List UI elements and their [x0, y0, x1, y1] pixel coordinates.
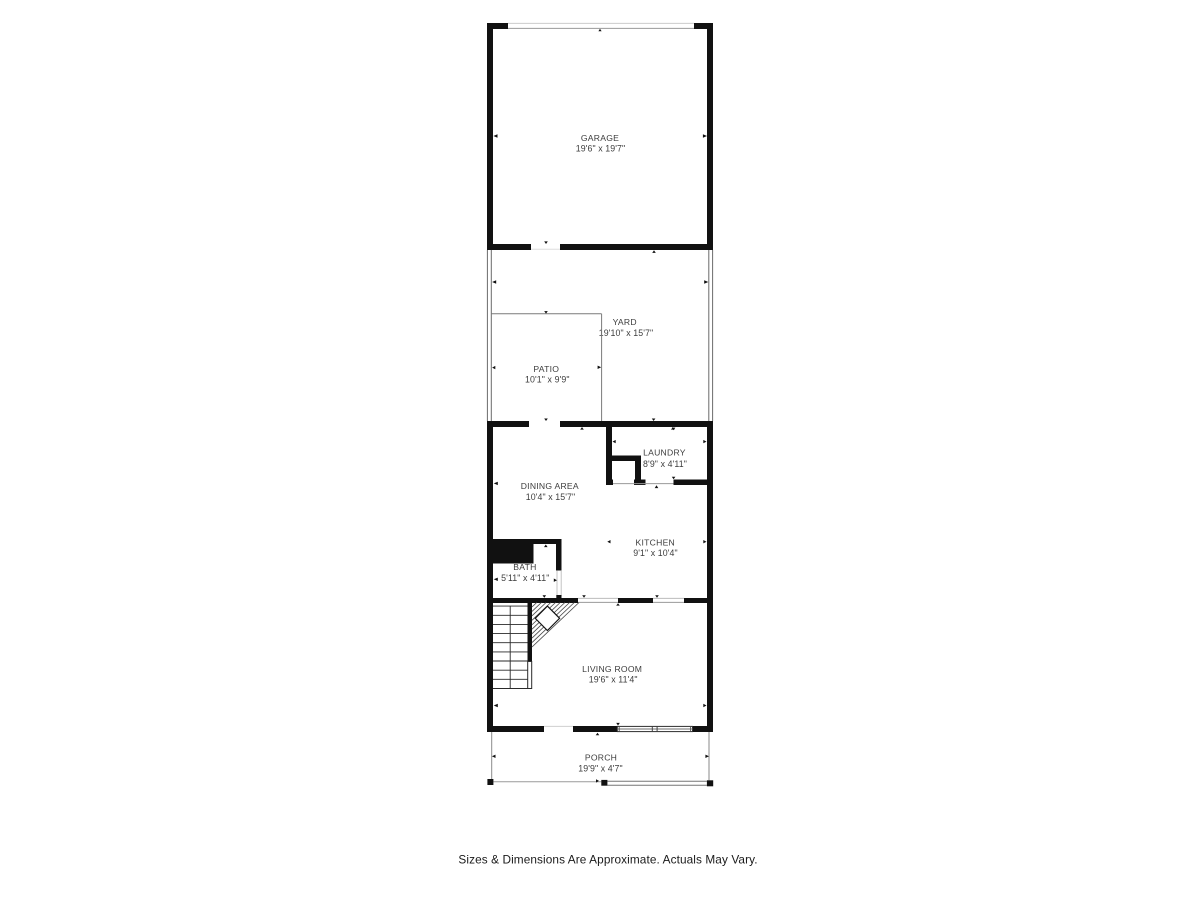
svg-text:PORCH: PORCH — [585, 753, 617, 763]
svg-text:9'1" x 10'4": 9'1" x 10'4" — [633, 548, 678, 558]
svg-text:10'4" x 15'7": 10'4" x 15'7" — [526, 492, 576, 502]
svg-text:KITCHEN: KITCHEN — [636, 538, 675, 548]
svg-text:19'6" x 11'4": 19'6" x 11'4" — [589, 674, 638, 684]
svg-text:LIVING ROOM: LIVING ROOM — [582, 664, 642, 674]
svg-text:LAUNDRY: LAUNDRY — [643, 447, 686, 457]
svg-text:BATH: BATH — [513, 562, 536, 572]
svg-text:19'10" x 15'7": 19'10" x 15'7" — [599, 328, 654, 338]
svg-text:Sizes & Dimensions Are Approxi: Sizes & Dimensions Are Approximate. Actu… — [458, 853, 757, 867]
svg-text:DINING AREA: DINING AREA — [521, 481, 579, 491]
svg-text:19'6" x 19'7": 19'6" x 19'7" — [576, 144, 626, 154]
svg-text:GARAGE: GARAGE — [581, 133, 619, 143]
svg-text:19'9" x 4'7": 19'9" x 4'7" — [578, 764, 623, 774]
svg-text:8'9" x 4'11": 8'9" x 4'11" — [643, 459, 687, 469]
svg-text:10'1" x 9'9": 10'1" x 9'9" — [525, 375, 570, 385]
svg-text:5'11" x 4'11": 5'11" x 4'11" — [501, 573, 549, 583]
svg-text:PATIO: PATIO — [533, 364, 559, 374]
svg-text:YARD: YARD — [613, 317, 637, 327]
